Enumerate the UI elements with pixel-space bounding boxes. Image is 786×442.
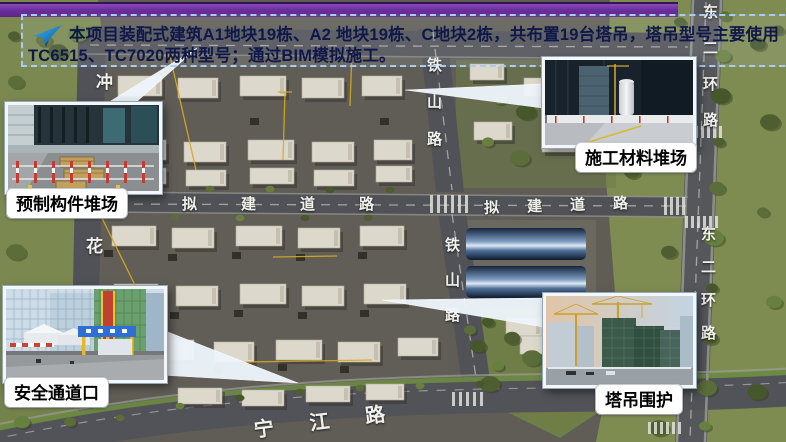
- photo-safety-entrance: [3, 286, 167, 383]
- callout-label-material-yard: 施工材料堆场: [576, 143, 696, 172]
- callout-label-crane-enclosure: 塔吊围护: [596, 385, 682, 414]
- photo-crane-enclosure: [543, 293, 696, 388]
- callout-label-safety-entrance: 安全通道口: [5, 378, 108, 407]
- site-fence: [547, 115, 693, 123]
- banner-text-line2: TC6515、TC7020两种型号；通过BIM模拟施工。: [28, 42, 396, 66]
- striped-barrier: [10, 343, 54, 347]
- callout-label-precast-yard: 预制构件堆场: [7, 189, 127, 218]
- cement-silo: [619, 79, 634, 115]
- photo-precast-yard: [5, 102, 162, 194]
- slide: 拟建道路 拟建道路 铁山路 铁山路 东二环路 东二环路 花 冲 宁江路 本项目装…: [0, 0, 786, 442]
- photo-material-yard: [542, 57, 696, 148]
